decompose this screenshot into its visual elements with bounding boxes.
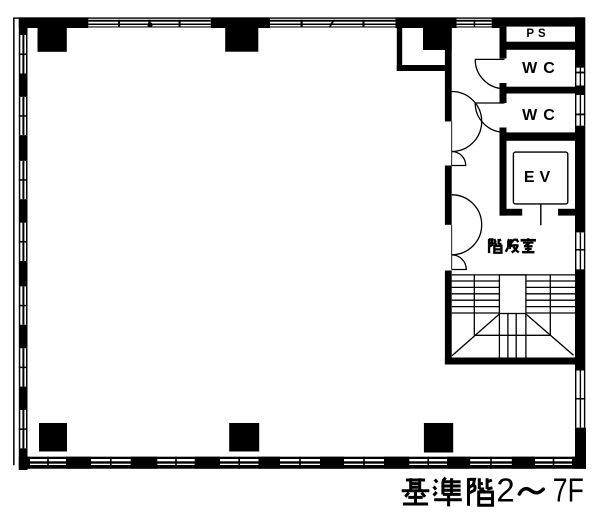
svg-text:7F: 7F	[553, 472, 584, 509]
svg-text:2: 2	[496, 472, 514, 509]
svg-text:EV: EV	[524, 169, 555, 186]
svg-text:WC: WC	[522, 60, 561, 77]
svg-text:WC: WC	[522, 107, 561, 124]
svg-text:PS: PS	[526, 28, 549, 40]
